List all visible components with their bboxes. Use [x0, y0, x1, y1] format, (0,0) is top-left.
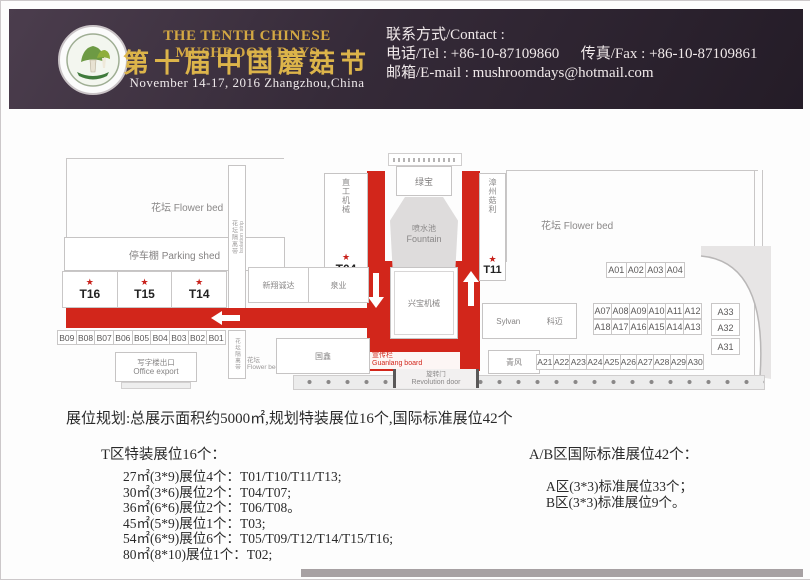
a-booth-row3: A18 A17 A16 A15 A14 A13	[594, 319, 702, 335]
a-booth-row4: A21 A22 A23 A24 A25 A26 A27 A28 A29 A30	[537, 354, 704, 370]
booth-a31: A31	[711, 338, 740, 355]
contact-block: 联系方式/Contact : 电话/Tel : +86-10-87109860 …	[386, 26, 796, 83]
t-section-list: 27㎡(3*9)展位4个：T01/T10/T11/T13; 30㎡(3*6)展位…	[123, 469, 393, 562]
event-date-location: November 14-17, 2016 Zhangzhou,China	[121, 75, 373, 91]
t-item: 80㎡(8*10)展位1个：T02;	[123, 547, 393, 563]
small-banner	[388, 153, 462, 166]
booth-a08: A08	[611, 303, 630, 319]
left-arrow-icon	[211, 311, 222, 325]
booth-a32: A32	[711, 319, 740, 336]
booth-a01: A01	[606, 262, 627, 278]
booth-a27: A27	[636, 354, 654, 370]
booth-a07: A07	[593, 303, 612, 319]
header-banner: THE TENTH CHINESE MUSHROOM DAYS 第十届中国蘑菇节…	[9, 9, 803, 109]
xinxiang-booth: 新翔诚达	[248, 267, 309, 303]
contact-email: 邮箱/E-mail : mushroomdays@hotmail.com	[386, 64, 796, 83]
star-icon: ★	[195, 278, 203, 287]
t-item: 27㎡(3*9)展位4个：T01/T10/T11/T13;	[123, 469, 393, 485]
booth-a14: A14	[665, 319, 684, 335]
booth-b04: B04	[150, 330, 170, 345]
booth-a02: A02	[626, 262, 647, 278]
booth-a16: A16	[629, 319, 648, 335]
contact-label: 联系方式/Contact :	[386, 26, 796, 45]
booth-a04: A04	[665, 262, 686, 278]
t-item: 36㎡(6*6)展位2个：T06/T08。	[123, 500, 393, 516]
boundary-line-right-inner	[506, 170, 507, 262]
booth-a21: A21	[536, 354, 554, 370]
booth-a25: A25	[603, 354, 621, 370]
mushroom-days-logo	[57, 24, 129, 96]
booth-a15: A15	[647, 319, 666, 335]
booth-b05: B05	[132, 330, 152, 345]
kemai-label: 科迈	[547, 316, 563, 327]
xingbao-booth: 兴宝机械	[390, 267, 458, 339]
booth-b07: B07	[94, 330, 114, 345]
t-item: 54㎡(6*9)展位6个：T05/T09/T12/T14/T15/T16;	[123, 531, 393, 547]
booth-a13: A13	[683, 319, 702, 335]
booth-a24: A24	[586, 354, 604, 370]
booth-a18: A18	[593, 319, 612, 335]
star-icon: ★	[140, 278, 148, 287]
booth-a03: A03	[645, 262, 666, 278]
booth-a10: A10	[647, 303, 666, 319]
booth-a17: A17	[611, 319, 630, 335]
tree-strip	[293, 375, 765, 390]
boundary-line-top-left	[66, 158, 284, 159]
quanye-booth: 泉业	[308, 267, 369, 303]
booth-t15: ★ T15	[117, 271, 173, 308]
booth-t11-column: 漳州菇利 ★ T11	[479, 173, 506, 281]
booth-a33: A33	[711, 303, 740, 320]
floor-plan: 花坛 Flower bed 花坛 Flower bed 停车棚 Parking …	[1, 109, 810, 409]
booth-a29: A29	[670, 354, 688, 370]
booth-b08: B08	[76, 330, 96, 345]
booth-a26: A26	[620, 354, 638, 370]
star-icon: ★	[86, 278, 94, 287]
star-icon: ★	[342, 253, 350, 262]
office-export-step	[121, 382, 191, 389]
b-booth-row: B09 B08 B07 B06 B05 B04 B03 B02 B01	[58, 330, 226, 345]
road-center-right	[462, 171, 480, 371]
qingfeng-booth: 青风	[488, 350, 540, 374]
t-item: 45㎡(5*9)展位1个：T03;	[123, 516, 393, 532]
contact-tel: 电话/Tel : +86-10-87109860	[386, 46, 559, 62]
fountain: 喷水池 Fountain	[390, 197, 458, 271]
ab-section-list: A区(3*3)标准展位33个； B区(3*3)标准展位9个。	[546, 479, 693, 511]
publicity-board: 宣传栏 Guanlang board	[370, 352, 460, 369]
ab-item: A区(3*3)标准展位33个；	[546, 479, 693, 495]
booth-t11: T11	[483, 264, 501, 276]
t-booth-row-left: ★ T16 ★ T15 ★ T14	[63, 271, 227, 308]
booth-a28: A28	[653, 354, 671, 370]
up-arrow-icon	[463, 271, 479, 282]
star-icon: ★	[488, 255, 496, 264]
booth-b09: B09	[57, 330, 77, 345]
booth-b01: B01	[206, 330, 226, 345]
booth-t14: ★ T14	[171, 271, 227, 308]
booth-a30: A30	[686, 354, 704, 370]
revolving-door: 旋转门 Revolution door	[393, 369, 479, 388]
boundary-line-top-right	[506, 170, 758, 171]
booth-b06: B06	[113, 330, 133, 345]
zhangzhou-guli-label: 漳州菇利	[487, 178, 498, 214]
contact-tel-fax: 电话/Tel : +86-10-87109860 传真/Fax : +86-10…	[386, 45, 796, 64]
isolation-strip-upper: 花坛隔离带 Isolation strip	[228, 165, 246, 310]
booth-a12: A12	[683, 303, 702, 319]
flower-bed-right-label: 花坛 Flower bed	[541, 217, 613, 232]
ab-item: B区(3*3)标准展位9个。	[546, 495, 693, 511]
a-booth-row1: A01 A02 A03 A04	[607, 262, 685, 278]
plan-overview: 展位规划:总展示面积约5000㎡,规划特装展位16个,国际标准展位42个	[66, 407, 513, 428]
booth-a11: A11	[665, 303, 684, 319]
booth-t16: ★ T16	[62, 271, 118, 308]
flower-bed-left-label: 花坛 Flower bed	[151, 199, 223, 214]
t-section-header: T区特装展位16个：	[101, 443, 226, 464]
ab-section-header: A/B区国际标准展位42个：	[529, 443, 698, 464]
event-flyer: THE TENTH CHINESE MUSHROOM DAYS 第十届中国蘑菇节…	[0, 0, 810, 580]
company-row: 新翔诚达 泉业	[249, 267, 369, 303]
contact-fax: 传真/Fax : +86-10-87109861	[581, 46, 758, 62]
booth-b02: B02	[188, 330, 208, 345]
isolation-strip-lower: 花坛隔离带	[228, 330, 246, 379]
a-booth-row2: A07 A08 A09 A10 A11 A12	[594, 303, 702, 319]
lvbao-booth: 绿宝	[396, 166, 452, 196]
t-item: 30㎡(3*6)展位2个：T04/T07;	[123, 485, 393, 501]
office-export: 写字楼出口 Office export	[115, 352, 197, 382]
parking-shed: 停车棚 Parking shed	[64, 237, 285, 271]
sylvan-kemai-booth: Sylvan 科迈	[482, 303, 577, 339]
booth-t04-column: 直工机械 ★ T04	[324, 173, 368, 281]
booth-a23: A23	[569, 354, 587, 370]
guoxin-booth: 国鑫	[276, 338, 370, 374]
booth-a09: A09	[629, 303, 648, 319]
booth-a22: A22	[553, 354, 571, 370]
bottom-edge-bar	[301, 569, 803, 577]
machinery-left-label: 直工机械	[341, 178, 352, 214]
booth-b03: B03	[169, 330, 189, 345]
sylvan-label: Sylvan	[496, 317, 520, 326]
down-arrow-icon	[368, 297, 384, 308]
road-west	[66, 308, 367, 328]
